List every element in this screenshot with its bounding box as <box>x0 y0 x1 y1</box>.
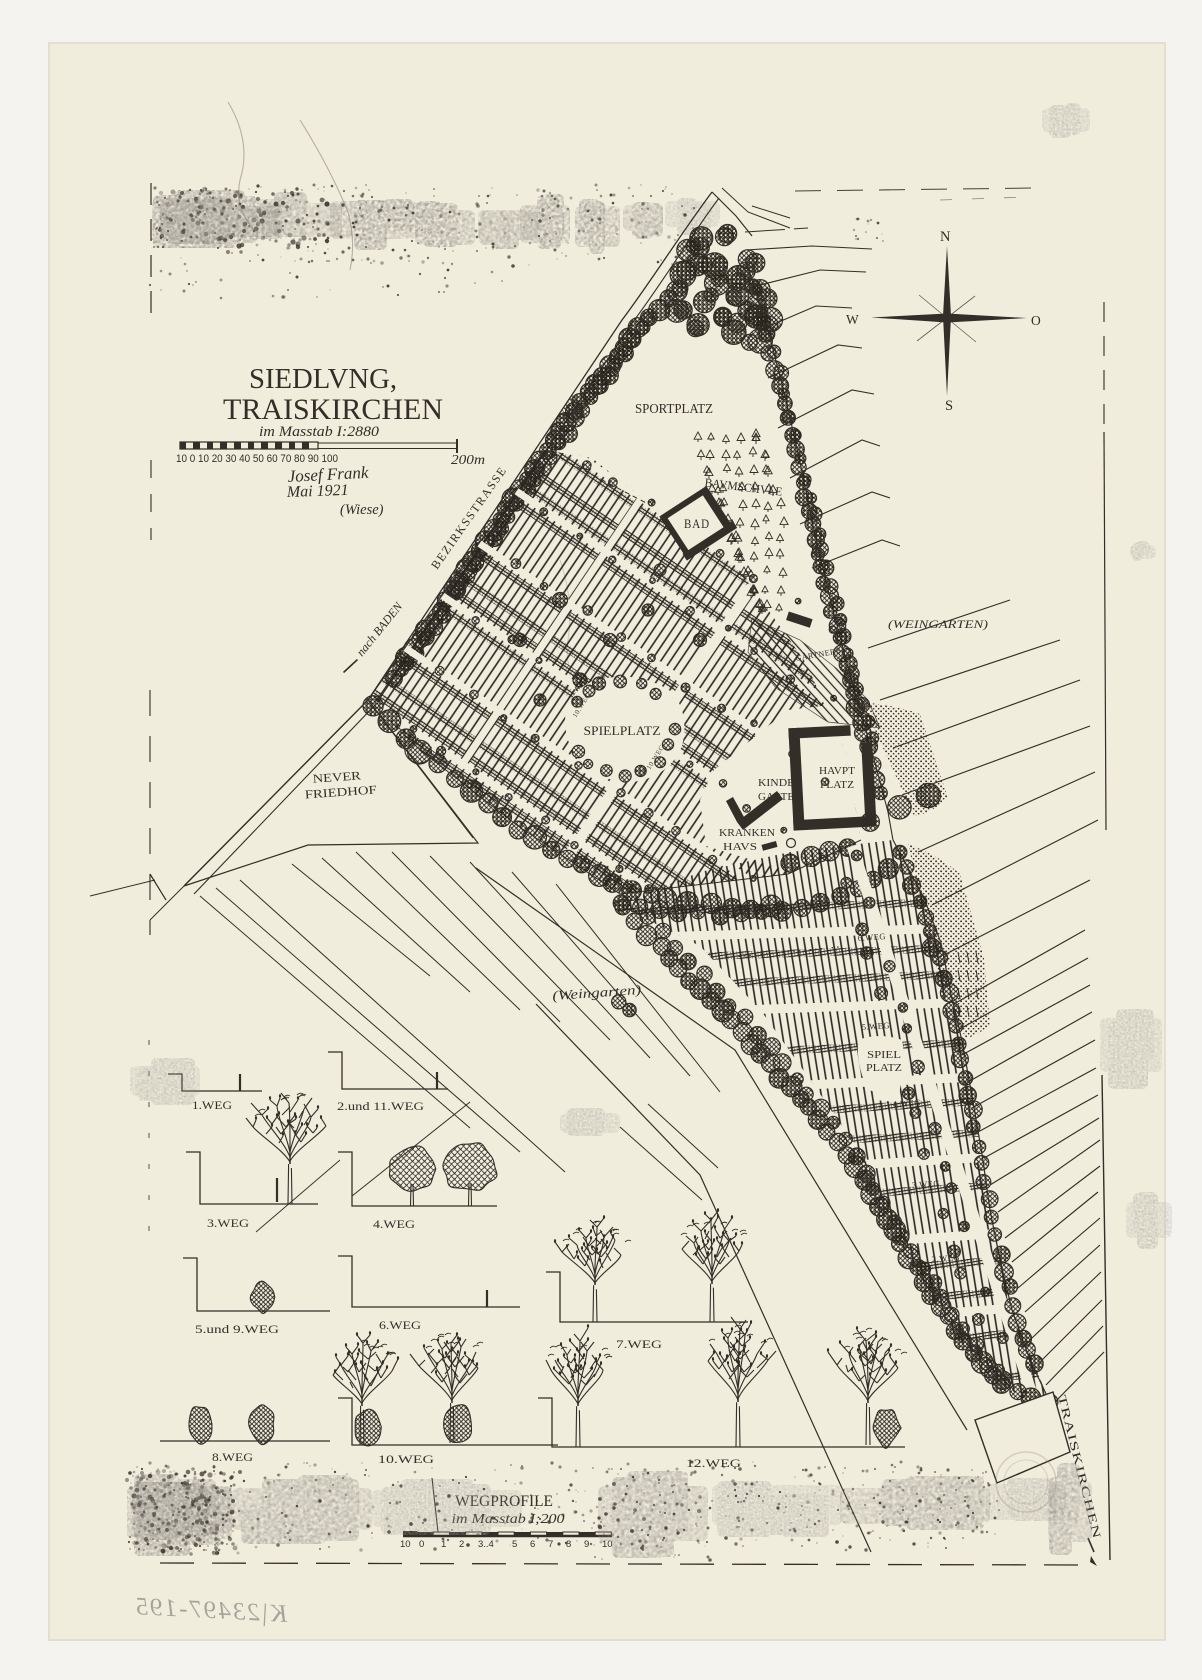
svg-text:PLATZ: PLATZ <box>866 1063 902 1074</box>
svg-text:HAVS: HAVS <box>723 842 757 853</box>
svg-text:6: 6 <box>530 1539 535 1550</box>
svg-text:0: 0 <box>419 1539 424 1550</box>
svg-text:4.WEG: 4.WEG <box>373 1217 415 1231</box>
svg-text:GARTEN: GARTEN <box>758 792 802 803</box>
svg-text:6.WEG: 6.WEG <box>379 1318 421 1332</box>
svg-text:TRAISKIRCHEN: TRAISKIRCHEN <box>223 394 443 426</box>
svg-text:S: S <box>945 398 953 414</box>
svg-text:5: 5 <box>512 1539 517 1550</box>
svg-text:SIEDLVNG,: SIEDLVNG, <box>249 364 397 395</box>
svg-text:SPIELPLATZ: SPIELPLATZ <box>584 723 661 738</box>
svg-text:(Wiese): (Wiese) <box>340 502 384 518</box>
svg-text:PLATZ: PLATZ <box>820 780 854 791</box>
svg-text:N: N <box>940 229 951 245</box>
svg-text:2.und 11.WEG: 2.und 11.WEG <box>337 1099 424 1113</box>
svg-text:HAVPT: HAVPT <box>819 766 856 777</box>
svg-text:O: O <box>1031 313 1041 328</box>
svg-text:7.WEG: 7.WEG <box>616 1337 662 1351</box>
svg-text:SPORTPLATZ: SPORTPLATZ <box>635 401 713 416</box>
svg-text:3..4: 3..4 <box>478 1539 494 1550</box>
svg-text:im Masstab I:2880: im Masstab I:2880 <box>259 424 380 440</box>
svg-text:10: 10 <box>400 1539 411 1550</box>
svg-text:5.und 9.WEG: 5.und 9.WEG <box>195 1322 279 1336</box>
svg-text:(WEINGARTEN): (WEINGARTEN) <box>888 617 988 631</box>
svg-text:8: 8 <box>566 1539 571 1550</box>
svg-text:8.WEG: 8.WEG <box>212 1450 253 1464</box>
svg-text:1: 1 <box>441 1539 446 1550</box>
svg-text:9: 9 <box>584 1539 589 1550</box>
svg-text:BAD: BAD <box>684 517 710 531</box>
svg-text:1.WEG: 1.WEG <box>192 1098 232 1112</box>
svg-text:Mai 1921: Mai 1921 <box>286 482 349 501</box>
svg-text:7: 7 <box>548 1539 553 1550</box>
svg-text:4.WEG: 4.WEG <box>892 1097 921 1109</box>
svg-text:KRANKEN: KRANKEN <box>719 828 775 839</box>
svg-text:SPIEL: SPIEL <box>867 1050 901 1061</box>
svg-text:6.WEG: 6.WEG <box>857 931 886 943</box>
svg-text:2: 2 <box>459 1539 464 1550</box>
svg-text:KINDER: KINDER <box>758 778 802 789</box>
svg-text:3.WEG: 3.WEG <box>911 1178 940 1190</box>
svg-text:W: W <box>846 312 859 327</box>
svg-text:3.WEG: 3.WEG <box>207 1216 249 1230</box>
svg-text:5.WEG: 5.WEG <box>861 1020 890 1032</box>
svg-text:10.WEG: 10.WEG <box>378 1452 434 1466</box>
svg-text:200m: 200m <box>451 452 485 467</box>
svg-text:10 0 10 20 30 40 50 60 70 80 9: 10 0 10 20 30 40 50 60 70 80 90 100 <box>176 453 338 465</box>
svg-text:2.WEG: 2.WEG <box>931 1252 960 1264</box>
